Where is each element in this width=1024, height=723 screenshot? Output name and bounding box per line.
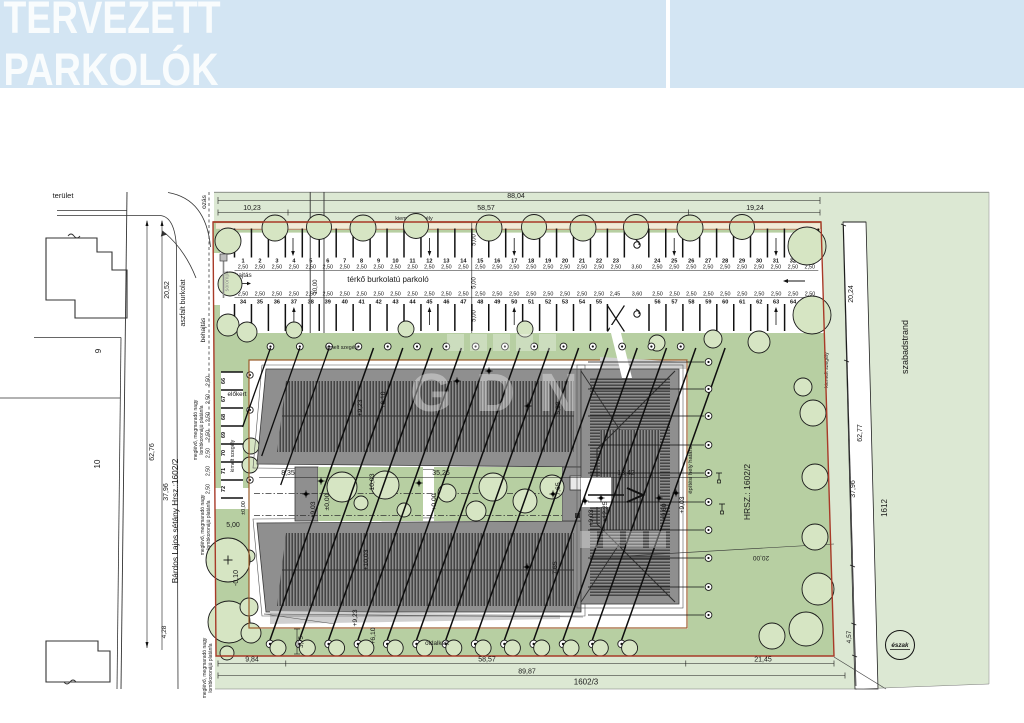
svg-text:2,50: 2,50 [390,265,401,271]
svg-text:36: 36 [274,300,280,306]
svg-text:56: 56 [654,300,660,306]
svg-text:2,50: 2,50 [407,265,418,271]
svg-text:2,50: 2,50 [594,292,605,298]
svg-text:21,45: 21,45 [754,657,772,664]
svg-text:2,50: 2,50 [206,466,212,476]
svg-text:58,57: 58,57 [477,205,495,212]
svg-text:2,50: 2,50 [255,265,266,271]
svg-text:10,23: 10,23 [243,205,261,212]
svg-text:4,57: 4,57 [846,630,853,643]
svg-text:2,50: 2,50 [255,292,266,298]
svg-text:2,50: 2,50 [652,292,663,298]
svg-text:PARKOLÓK: PARKOLÓK [4,43,219,95]
svg-text:2,50: 2,50 [703,265,714,271]
svg-text:20,24: 20,24 [848,285,855,303]
svg-text:2,50: 2,50 [390,292,401,298]
svg-text:66: 66 [221,378,227,384]
svg-text:2,50: 2,50 [492,265,503,271]
svg-text:HRSZ.: 1602/2: HRSZ.: 1602/2 [742,464,752,520]
svg-text:2,50: 2,50 [206,484,212,494]
svg-text:19,24: 19,24 [746,205,764,212]
svg-text:58,57: 58,57 [478,657,496,664]
svg-text:2,50: 2,50 [373,265,384,271]
svg-text:5,00: 5,00 [472,234,478,246]
svg-text:-0,10: -0,10 [233,570,240,586]
svg-text:Bárdos Lajos sétány Hrsz.:1602: Bárdos Lajos sétány Hrsz.:1602/2 [170,458,180,583]
svg-text:50: 50 [511,300,517,306]
svg-text:67: 67 [221,396,227,402]
svg-text:52: 52 [545,300,551,306]
svg-text:+9,03: +9,03 [679,496,686,513]
svg-text:46: 46 [443,300,449,306]
svg-text:70: 70 [221,450,227,456]
svg-text:2,50: 2,50 [509,292,520,298]
svg-text:2,50: 2,50 [594,265,605,271]
svg-text:2,50: 2,50 [737,265,748,271]
svg-text:51: 51 [528,300,534,306]
svg-text:2,50: 2,50 [206,448,212,458]
svg-text:37,96: 37,96 [850,480,857,498]
svg-text:2,50: 2,50 [206,394,212,404]
svg-text:20,52: 20,52 [164,281,171,299]
svg-text:térkő burkolatú parkoló: térkő burkolatú parkoló [347,275,429,284]
svg-text:+9,23: +9,23 [357,399,364,416]
svg-text:kimelt szegély: kimelt szegély [326,345,359,351]
svg-text:62,76: 62,76 [149,443,156,461]
svg-text:oldalkert: oldalkert [425,640,449,647]
svg-text:2,50: 2,50 [458,292,469,298]
svg-text:2,50: 2,50 [686,265,697,271]
svg-text:+9,03: +9,03 [588,509,595,526]
svg-text:±0,00: ±0,00 [324,493,331,510]
svg-text:2,50: 2,50 [492,292,503,298]
svg-text:44: 44 [409,300,416,306]
svg-text:TERVEZETT: TERVEZETT [4,0,221,43]
svg-text:2,50: 2,50 [356,265,367,271]
svg-text:72: 72 [221,486,227,492]
svg-text:2,50: 2,50 [771,292,782,298]
svg-text:89,87: 89,87 [518,669,536,676]
svg-text:2,50: 2,50 [424,292,435,298]
svg-text:2,50: 2,50 [788,265,799,271]
svg-text:terület: terület [53,191,75,200]
svg-text:2,50: 2,50 [373,292,384,298]
svg-text:ozás: ozás [201,194,208,208]
svg-text:59: 59 [705,300,711,306]
svg-text:2,50: 2,50 [458,265,469,271]
svg-text:2,50: 2,50 [543,265,554,271]
svg-text:2,50: 2,50 [560,265,571,271]
svg-text:41: 41 [358,300,364,306]
svg-text:2,50: 2,50 [424,265,435,271]
svg-text:3,60: 3,60 [631,265,642,271]
svg-text:2,50: 2,50 [339,292,350,298]
svg-text:2,50: 2,50 [788,292,799,298]
svg-text:39: 39 [325,300,331,306]
svg-text:18,42: 18,42 [617,470,635,477]
svg-text:37,96: 37,96 [163,483,170,501]
svg-text:88,04: 88,04 [507,193,525,200]
svg-text:2,50: 2,50 [206,430,212,440]
svg-text:53: 53 [562,300,568,306]
svg-text:GDN: GDN [410,363,602,423]
svg-text:35: 35 [257,300,263,306]
svg-text:észak: észak [891,642,909,649]
svg-text:2,50: 2,50 [289,265,300,271]
svg-text:2,50: 2,50 [720,265,731,271]
svg-text:2,50: 2,50 [238,292,249,298]
svg-text:behajtás: behajtás [200,317,207,342]
svg-text:10: 10 [93,459,102,468]
svg-text:2,50: 2,50 [526,292,537,298]
svg-text:2,50: 2,50 [356,292,367,298]
svg-text:47: 47 [460,300,466,306]
svg-text:2,50: 2,50 [669,292,680,298]
svg-text:57: 57 [671,300,677,306]
svg-text:2,50: 2,50 [407,292,418,298]
svg-text:1612: 1612 [880,499,889,517]
svg-text:építési hely határa: építési hely határa [688,446,694,494]
svg-text:62,77: 62,77 [857,424,864,442]
svg-text:55: 55 [596,300,602,306]
svg-text:2,50: 2,50 [206,376,212,386]
svg-text:58: 58 [688,300,694,306]
svg-text:60: 60 [722,300,728,306]
svg-text:9,84: 9,84 [245,657,259,664]
svg-text:61: 61 [739,300,745,306]
svg-text:45: 45 [426,300,432,306]
svg-text:2,50: 2,50 [339,265,350,271]
svg-text:37: 37 [291,300,297,306]
svg-text:+9,23: +9,23 [352,609,359,626]
svg-text:2,50: 2,50 [238,265,249,271]
svg-text:2,50: 2,50 [577,292,588,298]
svg-text:2,50: 2,50 [441,265,452,271]
svg-text:20,00: 20,00 [752,554,769,561]
svg-text:2,45: 2,45 [610,292,621,298]
svg-text:40: 40 [342,300,348,306]
svg-text:62: 62 [756,300,762,306]
svg-text:kimelt szegély: kimelt szegély [230,439,236,472]
svg-text:lombkoronájú platánfa: lombkoronájú platánfa [208,643,214,692]
svg-text:2,50: 2,50 [686,292,697,298]
svg-text:42: 42 [375,300,381,306]
svg-text:2,50: 2,50 [475,292,486,298]
svg-text:68: 68 [221,414,227,420]
svg-text:2,50: 2,50 [475,265,486,271]
svg-text:aszfalt burkolat: aszfalt burkolat [180,279,187,326]
svg-text:2,50: 2,50 [560,292,571,298]
svg-text:2,50: 2,50 [272,292,283,298]
svg-text:5,00: 5,00 [472,277,478,289]
svg-text:10,03: 10,03 [369,473,376,490]
svg-text:2,50: 2,50 [611,265,622,271]
svg-text:5,00: 5,00 [472,310,478,322]
svg-text:34: 34 [240,300,247,306]
svg-text:2,50: 2,50 [652,265,663,271]
svg-text:2,50: 2,50 [289,292,300,298]
svg-text:2,50: 2,50 [754,292,765,298]
svg-text:4,28: 4,28 [161,625,168,638]
svg-text:71: 71 [221,468,227,474]
svg-text:3,75: 3,75 [299,636,305,648]
svg-text:69: 69 [221,432,227,438]
svg-text:48: 48 [477,300,483,306]
svg-text:2,50: 2,50 [272,265,283,271]
svg-text:9: 9 [94,348,103,353]
svg-text:54: 54 [579,300,586,306]
svg-text:2,50: 2,50 [577,265,588,271]
svg-text:2,50: 2,50 [206,412,212,422]
svg-text:2,50: 2,50 [543,292,554,298]
svg-text:1602/3: 1602/3 [574,678,599,687]
svg-text:2,50: 2,50 [720,292,731,298]
svg-text:2,50: 2,50 [669,265,680,271]
svg-text:előkert: előkert [228,391,247,398]
svg-text:szabadstrand: szabadstrand [900,320,910,374]
svg-text:43: 43 [392,300,398,306]
svg-text:2,50: 2,50 [306,265,317,271]
svg-text:5,00: 5,00 [226,522,240,529]
svg-text:63: 63 [773,300,779,306]
svg-text:2,50: 2,50 [703,292,714,298]
svg-text:lombkoronájú platánfa: lombkoronájú platánfa [206,500,212,549]
svg-text:sorompó: sorompó [225,271,231,292]
svg-text:±0,00: ±0,00 [241,501,247,515]
svg-text:+10,03: +10,03 [363,549,370,570]
svg-text:2,50: 2,50 [509,265,520,271]
svg-text:2,50: 2,50 [737,292,748,298]
svg-text:lombkoronájú platánfa: lombkoronájú platánfa [199,405,205,454]
svg-text:2,50: 2,50 [754,265,765,271]
svg-text:2,50: 2,50 [771,265,782,271]
svg-text:49: 49 [494,300,500,306]
svg-text:10,00: 10,00 [313,279,319,295]
svg-text:38: 38 [308,300,314,306]
svg-text:3,60: 3,60 [632,292,643,298]
svg-text:2,50: 2,50 [526,265,537,271]
svg-text:2,50: 2,50 [441,292,452,298]
